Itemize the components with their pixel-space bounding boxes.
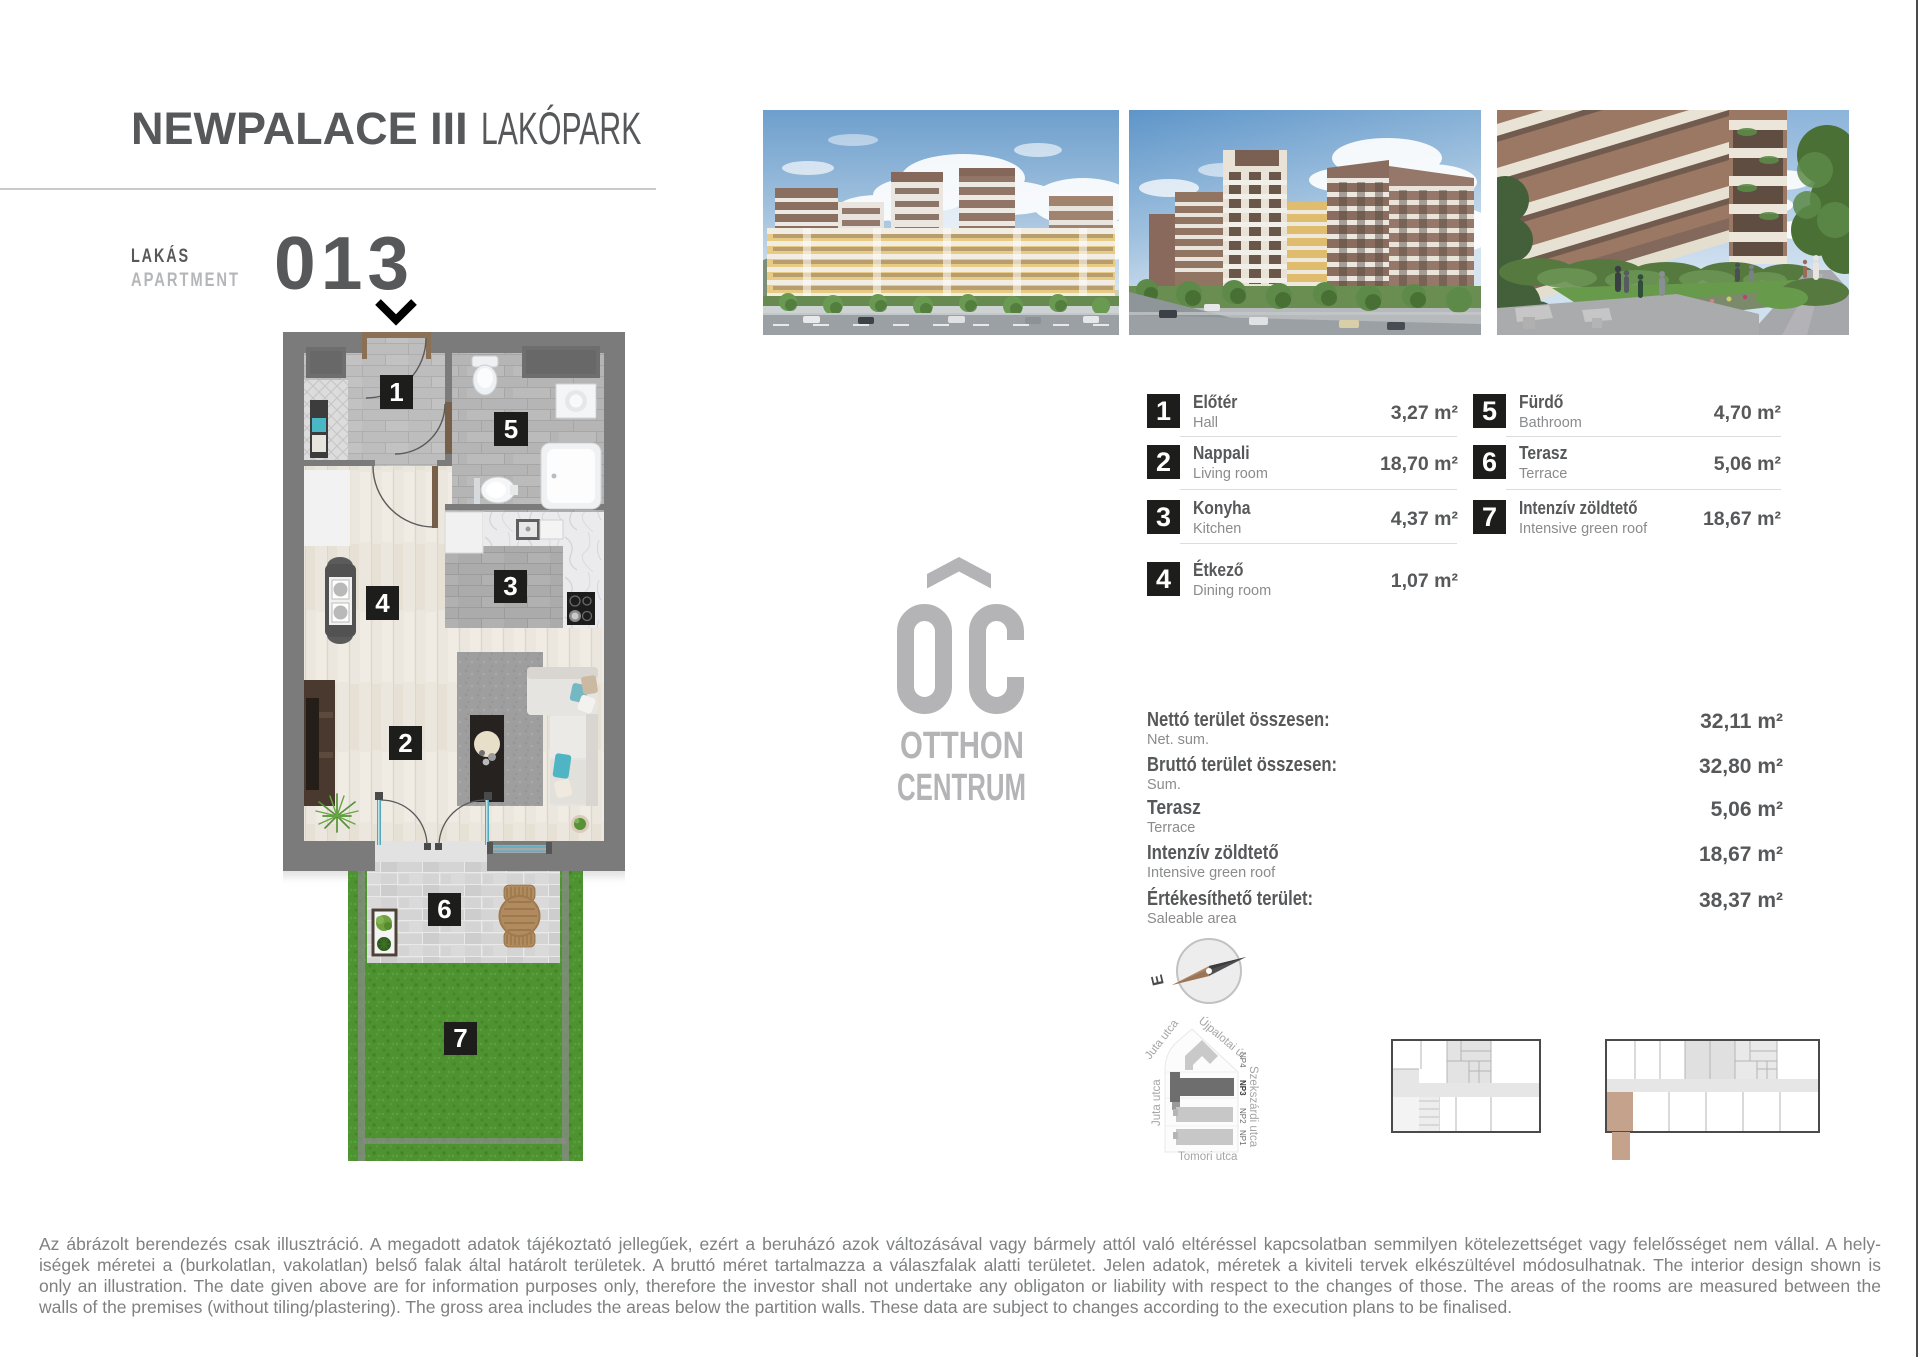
svg-text:NP1: NP1 bbox=[1238, 1130, 1247, 1146]
svg-text:3: 3 bbox=[503, 571, 517, 601]
svg-text:NP2: NP2 bbox=[1238, 1108, 1247, 1124]
svg-text:NP3: NP3 bbox=[1238, 1080, 1247, 1096]
svg-text:4: 4 bbox=[375, 588, 390, 618]
svg-text:7: 7 bbox=[453, 1023, 467, 1053]
svg-text:6: 6 bbox=[437, 894, 451, 924]
svg-text:Juta utca: Juta utca bbox=[1151, 1079, 1163, 1126]
svg-text:5: 5 bbox=[504, 414, 518, 444]
svg-text:E: E bbox=[1149, 972, 1168, 987]
svg-text:OTTHON: OTTHON bbox=[900, 725, 1024, 767]
svg-text:CENTRUM: CENTRUM bbox=[897, 767, 1026, 809]
svg-text:Szekszárdi utca: Szekszárdi utca bbox=[1247, 1066, 1259, 1148]
svg-text:1: 1 bbox=[389, 377, 403, 407]
svg-text:Tomori utca: Tomori utca bbox=[1178, 1151, 1238, 1163]
svg-text:2: 2 bbox=[398, 728, 412, 758]
